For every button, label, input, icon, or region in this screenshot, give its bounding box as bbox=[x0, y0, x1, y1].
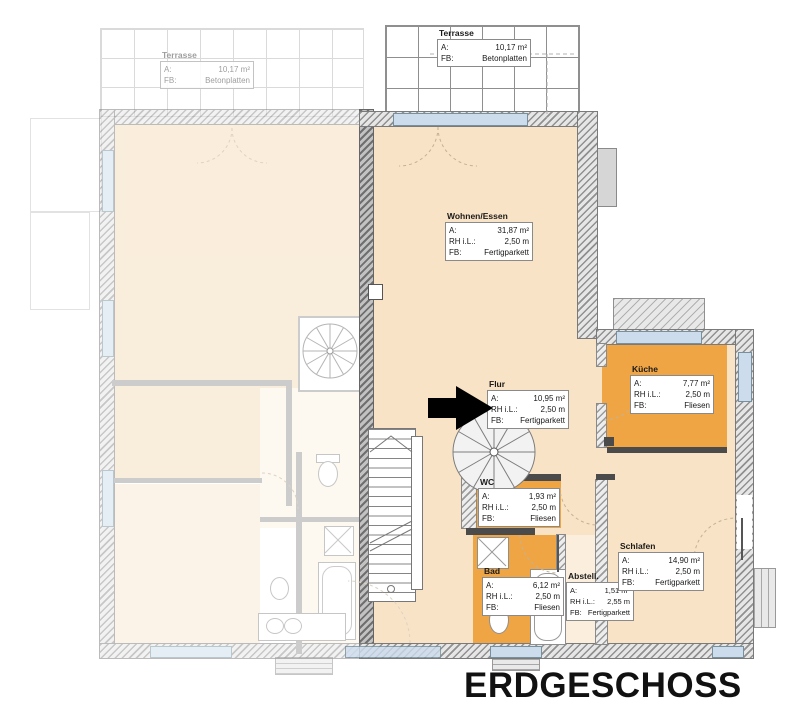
wall bbox=[462, 400, 476, 528]
exterior-outline bbox=[30, 212, 90, 310]
field-label: A: bbox=[570, 585, 577, 596]
toilet-icon bbox=[318, 461, 338, 487]
field-value: 2,55 m bbox=[607, 596, 630, 607]
wall-socket bbox=[368, 284, 383, 300]
wall bbox=[607, 447, 727, 453]
field-value: Betonplatten bbox=[205, 75, 250, 86]
window bbox=[102, 470, 114, 527]
field-value: 2,50 m bbox=[686, 389, 710, 400]
room-name: Küche bbox=[632, 364, 714, 374]
field-label: FB: bbox=[449, 247, 461, 258]
shower-icon bbox=[477, 537, 509, 569]
wall bbox=[597, 344, 606, 366]
field-label: RH i.L.: bbox=[449, 236, 476, 247]
field-label: FB: bbox=[634, 400, 646, 411]
field-label: RH i.L.: bbox=[570, 596, 595, 607]
stair-handrail bbox=[411, 436, 423, 590]
field-value: Fertigparkett bbox=[520, 415, 565, 426]
field-value: 2,50 m bbox=[532, 502, 556, 513]
wall bbox=[596, 474, 615, 480]
room-label-terrasse-left: Terrasse A:10,17 m² FB:Betonplatten bbox=[160, 50, 254, 89]
field-value: 2,50 m bbox=[536, 591, 560, 602]
wall bbox=[466, 528, 535, 535]
wall bbox=[286, 386, 292, 506]
field-value: Fertigparkett bbox=[655, 577, 700, 588]
sink-icon bbox=[270, 577, 289, 600]
field-value: Fertigparkett bbox=[588, 607, 630, 618]
field-label: FB: bbox=[482, 513, 494, 524]
room-left-b bbox=[112, 484, 260, 654]
door-opening bbox=[737, 495, 752, 549]
stair-room-left bbox=[298, 316, 366, 392]
field-value: Betonplatten bbox=[482, 53, 527, 64]
window bbox=[102, 300, 114, 357]
field-label: FB: bbox=[441, 53, 453, 64]
field-label: A: bbox=[486, 580, 494, 591]
field-value: Fliesen bbox=[534, 602, 560, 613]
awning bbox=[613, 298, 705, 334]
window-schlafen bbox=[712, 646, 744, 658]
wall bbox=[112, 380, 292, 386]
entrance-glass-door bbox=[345, 646, 441, 658]
room-name: WC bbox=[480, 477, 560, 487]
room-label-wc: WC A:1,93 m² RH i.L.:2,50 m FB:Fliesen bbox=[478, 477, 560, 527]
field-value: Fertigparkett bbox=[484, 247, 529, 258]
field-label: A: bbox=[441, 42, 449, 53]
left-unit bbox=[100, 110, 368, 658]
field-label: FB: bbox=[164, 75, 176, 86]
window bbox=[102, 150, 114, 212]
field-label: FB: bbox=[570, 607, 582, 618]
room-name: Terrasse bbox=[162, 50, 254, 60]
room-label-wohnen-essen: Wohnen/Essen A:31,87 m² RH i.L.:2,50 m F… bbox=[445, 211, 533, 261]
window-bad bbox=[490, 646, 542, 658]
field-label: A: bbox=[482, 491, 490, 502]
field-value: 10,95 m² bbox=[533, 393, 565, 404]
window-kueche bbox=[616, 331, 702, 344]
window-wohnen bbox=[393, 113, 528, 126]
sink-icon bbox=[266, 618, 284, 634]
field-label: A: bbox=[622, 555, 630, 566]
room-label-terrasse-right: Terrasse A:10,17 m² FB:Betonplatten bbox=[437, 28, 531, 67]
exterior-outline bbox=[30, 118, 102, 212]
room-label-bad: Bad A:6,12 m² RH i.L.:2,50 m FB:Fliesen bbox=[482, 566, 564, 616]
staircase bbox=[368, 428, 416, 602]
entrance-steps bbox=[275, 657, 333, 675]
room-label-schlafen: Schlafen A:14,90 m² RH i.L.:2,50 m FB:Fe… bbox=[618, 541, 704, 591]
field-value: 2,50 m bbox=[505, 236, 529, 247]
field-value: 1,93 m² bbox=[529, 491, 556, 502]
sink-icon bbox=[284, 618, 302, 634]
field-value: 14,90 m² bbox=[668, 555, 700, 566]
terrace-step bbox=[753, 568, 776, 628]
field-label: FB: bbox=[622, 577, 634, 588]
field-value: 10,17 m² bbox=[218, 64, 250, 75]
shower-icon bbox=[324, 526, 354, 556]
field-label: A: bbox=[449, 225, 457, 236]
field-value: 2,50 m bbox=[676, 566, 700, 577]
room-label-flur: Flur A:10,95 m² RH i.L.:2,50 m FB:Fertig… bbox=[487, 379, 569, 429]
field-label: RH i.L.: bbox=[634, 389, 661, 400]
room-name: Wohnen/Essen bbox=[447, 211, 533, 221]
field-label: RH i.L.: bbox=[482, 502, 509, 513]
wall bbox=[604, 437, 614, 446]
wall bbox=[260, 517, 360, 522]
field-value: 7,77 m² bbox=[683, 378, 710, 389]
field-value: Fliesen bbox=[684, 400, 710, 411]
room-name: Terrasse bbox=[439, 28, 531, 38]
field-label: A: bbox=[634, 378, 642, 389]
field-label: FB: bbox=[491, 415, 503, 426]
floor-plan: Terrasse A:10,17 m² FB:Betonplatten Terr… bbox=[0, 0, 803, 716]
field-value: 10,17 m² bbox=[495, 42, 527, 53]
room-label-kueche: Küche A:7,77 m² RH i.L.:2,50 m FB:Fliese… bbox=[630, 364, 714, 414]
room-name: Flur bbox=[489, 379, 569, 389]
wall bbox=[112, 478, 262, 483]
wall bbox=[100, 110, 368, 124]
field-label: A: bbox=[491, 393, 499, 404]
field-label: FB: bbox=[486, 602, 498, 613]
field-value: 2,50 m bbox=[541, 404, 565, 415]
chimney bbox=[595, 148, 617, 207]
room-left-a bbox=[112, 388, 260, 481]
field-label: RH i.L.: bbox=[622, 566, 649, 577]
window-kueche-east bbox=[738, 352, 752, 402]
field-label: RH i.L.: bbox=[491, 404, 518, 415]
window bbox=[150, 646, 232, 658]
wall bbox=[100, 644, 368, 658]
field-value: 31,87 m² bbox=[497, 225, 529, 236]
room-name: Schlafen bbox=[620, 541, 704, 551]
field-value: Fliesen bbox=[530, 513, 556, 524]
room-name: Bad bbox=[484, 566, 564, 576]
field-label: A: bbox=[164, 64, 172, 75]
wall bbox=[578, 112, 597, 338]
field-value: 6,12 m² bbox=[533, 580, 560, 591]
field-label: RH i.L.: bbox=[486, 591, 513, 602]
page-title: ERDGESCHOSS bbox=[464, 666, 742, 706]
